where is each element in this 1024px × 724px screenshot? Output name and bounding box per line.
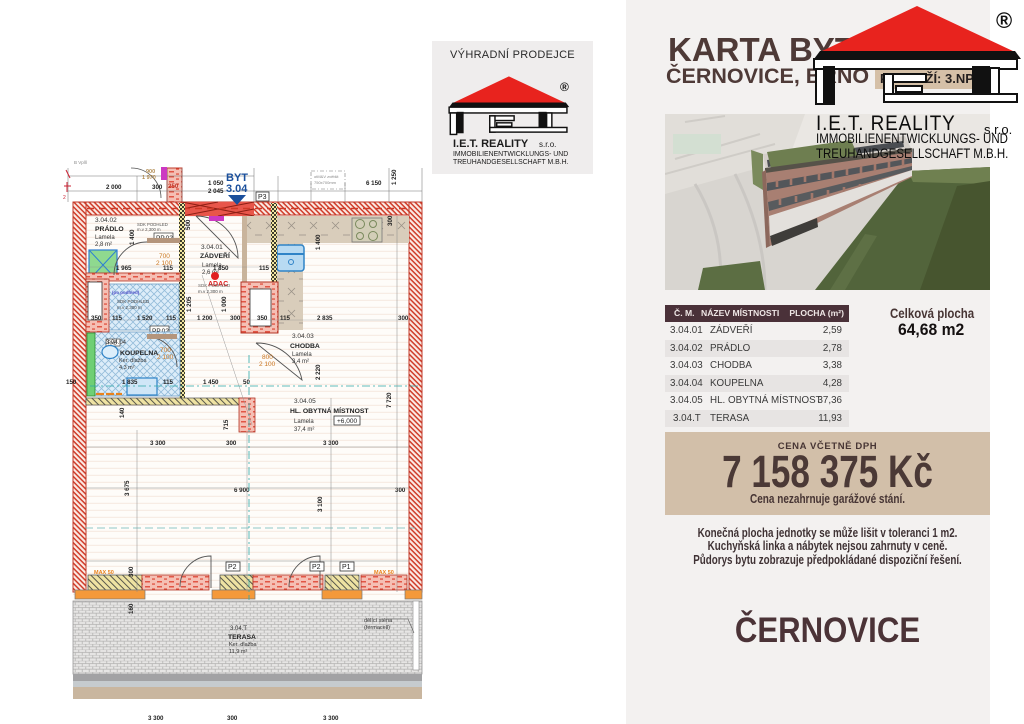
svg-text:3.04.05: 3.04.05 <box>294 398 316 405</box>
svg-text:MAX 50: MAX 50 <box>94 570 114 576</box>
svg-text:160: 160 <box>128 603 135 614</box>
svg-text:4,3 m²: 4,3 m² <box>119 365 135 371</box>
svg-text:11,9 m²: 11,9 m² <box>229 649 247 655</box>
svg-text:(po podhled): (po podhled) <box>112 290 140 295</box>
svg-text:800: 800 <box>262 354 273 361</box>
svg-text:115: 115 <box>163 379 174 386</box>
svg-text:P3: P3 <box>258 194 267 201</box>
svg-text:3 100: 3 100 <box>317 496 324 512</box>
svg-text:1 400: 1 400 <box>129 229 136 245</box>
svg-text:2 835: 2 835 <box>317 315 333 322</box>
svg-text:P2: P2 <box>312 564 321 571</box>
svg-text:3.04.T: 3.04.T <box>230 626 247 632</box>
svg-text:2,8 m²: 2,8 m² <box>95 242 112 248</box>
svg-text:Lamela: Lamela <box>294 419 314 425</box>
svg-text:3.04.01: 3.04.01 <box>201 244 223 251</box>
svg-text:Lamela: Lamela <box>292 352 312 358</box>
svg-text:1 200: 1 200 <box>197 315 213 322</box>
svg-text:m.v 2,300 m: m.v 2,300 m <box>137 227 161 232</box>
svg-text:300: 300 <box>226 440 237 447</box>
svg-text:300: 300 <box>227 715 238 722</box>
svg-text:115: 115 <box>280 315 291 322</box>
svg-text:P2: P2 <box>228 564 237 571</box>
svg-text:KOUPELNA: KOUPELNA <box>120 350 158 357</box>
svg-text:CHODBA: CHODBA <box>290 343 320 350</box>
svg-text:3 300: 3 300 <box>150 440 166 447</box>
svg-text:1 050: 1 050 <box>208 180 224 187</box>
svg-text:otM&V zvětšit: otM&V zvětšit <box>314 174 339 179</box>
svg-text:Lamela: Lamela <box>95 235 115 241</box>
svg-text:1 250: 1 250 <box>391 169 398 185</box>
svg-text:+6,000: +6,000 <box>337 418 357 425</box>
svg-text:700: 700 <box>159 253 170 260</box>
svg-text:1 000: 1 000 <box>221 296 228 312</box>
svg-text:1 965: 1 965 <box>116 265 132 272</box>
svg-text:PRÁDLO: PRÁDLO <box>95 224 124 233</box>
svg-text:500: 500 <box>185 219 192 230</box>
svg-text:1 205: 1 205 <box>186 296 193 312</box>
svg-text:1 970: 1 970 <box>142 175 156 181</box>
svg-text:2 100: 2 100 <box>156 260 173 267</box>
svg-text:3 300: 3 300 <box>323 715 339 722</box>
svg-text:115: 115 <box>112 315 123 322</box>
svg-text:300: 300 <box>128 566 135 577</box>
svg-text:6 150: 6 150 <box>366 180 382 187</box>
svg-text:Ker. dlažba: Ker. dlažba <box>229 642 257 648</box>
svg-text:1 835: 1 835 <box>122 379 138 386</box>
svg-text:3.04: 3.04 <box>226 183 248 195</box>
svg-text:2 045: 2 045 <box>208 188 224 195</box>
svg-text:150: 150 <box>66 379 77 386</box>
svg-text:1 450: 1 450 <box>203 379 219 386</box>
svg-text:2 100: 2 100 <box>259 361 276 368</box>
svg-text:Ker. dlažba: Ker. dlažba <box>119 358 147 364</box>
svg-text:750x700mm: 750x700mm <box>314 180 337 185</box>
svg-text:TERASA: TERASA <box>228 634 256 641</box>
svg-text:m.v 2,300 m: m.v 2,300 m <box>198 289 223 294</box>
svg-text:715: 715 <box>223 419 230 430</box>
svg-text:B Vplň: B Vplň <box>74 160 88 165</box>
svg-text:m.v 2,300 m: m.v 2,300 m <box>117 305 142 310</box>
svg-text:300: 300 <box>387 215 394 226</box>
svg-text:ZÁDVEŘÍ: ZÁDVEŘÍ <box>200 251 231 260</box>
svg-text:115: 115 <box>166 315 177 322</box>
svg-text:140: 140 <box>119 407 126 418</box>
svg-text:P1: P1 <box>342 564 351 571</box>
svg-text:2 000: 2 000 <box>106 184 122 191</box>
svg-text:700: 700 <box>160 347 171 354</box>
svg-text:37,4 m²: 37,4 m² <box>294 427 314 433</box>
svg-text:3.04.04: 3.04.04 <box>106 340 127 346</box>
svg-text:300: 300 <box>230 315 241 322</box>
svg-text:2 100: 2 100 <box>157 354 174 361</box>
svg-text:250: 250 <box>168 183 179 190</box>
svg-text:MAX 50: MAX 50 <box>374 570 394 576</box>
svg-text:300: 300 <box>152 184 163 191</box>
svg-text:1 850: 1 850 <box>213 265 229 272</box>
svg-text:350: 350 <box>257 315 268 322</box>
svg-text:2: 2 <box>63 195 66 201</box>
svg-text:115: 115 <box>259 265 270 272</box>
svg-text:3 300: 3 300 <box>148 715 164 722</box>
svg-text:3.04.02: 3.04.02 <box>95 217 117 224</box>
svg-text:SDK PODHLED: SDK PODHLED <box>198 283 231 288</box>
svg-text:1 520: 1 520 <box>137 315 153 322</box>
svg-text:1 400: 1 400 <box>315 234 322 250</box>
svg-text:300: 300 <box>398 315 409 322</box>
svg-text:2 220: 2 220 <box>315 364 322 380</box>
svg-text:7 720: 7 720 <box>386 392 393 408</box>
svg-text:(fermacell): (fermacell) <box>364 625 390 631</box>
svg-text:SDK PODHLED: SDK PODHLED <box>117 299 150 304</box>
svg-text:3.04.03: 3.04.03 <box>292 333 314 340</box>
svg-text:HL. OBYTNÁ MÍSTNOST: HL. OBYTNÁ MÍSTNOST <box>290 406 369 415</box>
svg-text:350: 350 <box>91 315 102 322</box>
